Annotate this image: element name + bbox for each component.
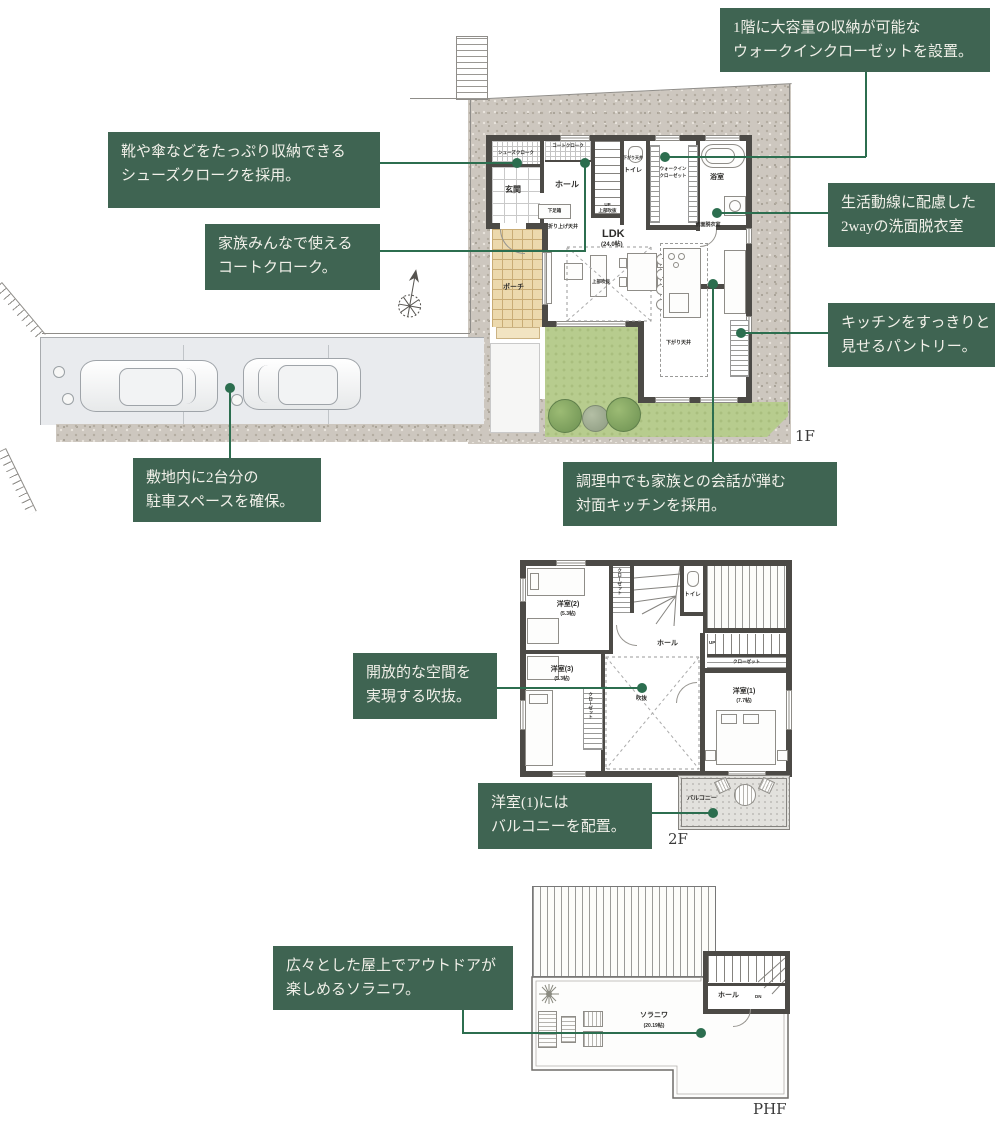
- dining-table: [627, 253, 657, 291]
- connector-coat-v: [584, 163, 586, 251]
- car-2-windshield: [258, 365, 275, 403]
- label-room3-size: (5.3帖): [538, 676, 586, 682]
- window: [655, 397, 690, 403]
- label-closet-room1: クローゼット: [707, 659, 786, 665]
- kitchen-sink: [669, 293, 689, 313]
- car-2: [243, 358, 361, 410]
- floor-label-1f: 1F: [795, 427, 815, 445]
- deck-chair: [583, 1011, 603, 1027]
- phf-stairs-fan: [758, 956, 785, 996]
- stove-burner: [678, 253, 685, 260]
- connector-washroom: [717, 212, 828, 214]
- floor-label-phf: PHF: [753, 1100, 787, 1118]
- car-2-cabin: [278, 365, 338, 405]
- wic-shelf: [650, 145, 660, 223]
- car-1-cabin: [119, 368, 183, 406]
- label-stairs-dn: DN: [755, 994, 762, 1000]
- label-porch: ポーチ: [503, 284, 524, 293]
- label-room2-size: (5.3帖): [544, 611, 592, 617]
- label-hall-1f: ホール: [555, 180, 579, 190]
- label-toilet-ceiling: 下がり天井: [620, 155, 646, 160]
- kitchen-back-counter: [724, 250, 746, 314]
- f2-stairs-to-phf: [707, 634, 786, 654]
- label-hall-2f: ホール: [657, 640, 678, 649]
- car-1: [80, 360, 218, 412]
- f1-genkan-floor: [492, 167, 540, 223]
- stove-burner: [673, 262, 679, 268]
- window: [556, 560, 586, 566]
- compass-icon: [388, 268, 432, 326]
- phf-roof: [532, 886, 716, 977]
- connector-kitchen: [712, 284, 714, 462]
- washbasin-bowl: [729, 200, 741, 212]
- connector-wic-v: [865, 70, 867, 157]
- label-void: 吹抜: [634, 696, 649, 703]
- label-toilet-2f: トイレ: [681, 592, 704, 599]
- window: [746, 228, 752, 244]
- label-room3: 洋室(3): [538, 666, 586, 675]
- connector-parking: [229, 388, 231, 458]
- tree-icon-1: [548, 399, 582, 433]
- wall: [703, 628, 792, 633]
- f1-approach: [490, 343, 540, 433]
- annotation-washroom: 生活動線に配慮した2wayの洗面脱衣室: [828, 183, 995, 247]
- tv-board: [546, 252, 552, 304]
- window: [655, 135, 680, 141]
- connector-void: [497, 687, 642, 689]
- label-coat-closet: コートクローク: [545, 143, 591, 149]
- pillow-room1: [743, 714, 759, 724]
- connector-pantry: [741, 332, 828, 334]
- annotation-void: 開放的な空間を実現する吹抜。: [353, 653, 497, 719]
- nightstand: [705, 750, 716, 761]
- label-stairs-up: UP: [595, 202, 620, 208]
- wall: [703, 668, 792, 673]
- site-boundary-west: [470, 100, 471, 333]
- tree-icon-2: [582, 405, 609, 432]
- label-closet-room2: クローゼット: [617, 568, 623, 612]
- label-solaniwa: ソラニワ: [626, 1012, 682, 1021]
- annotation-walkin-closet: 1階に大容量の収納が可能なウォークインクローゼットを設置。: [720, 8, 990, 72]
- label-closet-room3: クローゼット: [588, 692, 594, 744]
- dining-chair: [619, 277, 627, 287]
- label-genkan: 玄関: [505, 185, 521, 195]
- window: [705, 135, 740, 141]
- connector-solaniwa-v: [462, 1008, 464, 1033]
- wall: [638, 325, 644, 403]
- connector-shoes: [380, 162, 517, 164]
- label-living-void: 上部吹抜: [592, 279, 610, 285]
- deck-lounger: [538, 1011, 557, 1048]
- label-bath: 浴室: [710, 174, 724, 183]
- wall: [526, 650, 613, 654]
- f2-void: [605, 656, 700, 770]
- wall: [680, 566, 684, 616]
- label-hall-phf: ホール: [718, 992, 739, 1001]
- desk-room2: [527, 618, 559, 644]
- road-slope-hatch-top: [0, 282, 46, 341]
- annotation-pantry: キッチンをすっきりと見せるパントリー。: [828, 303, 995, 367]
- road-slope-hatch-bottom: [0, 448, 37, 515]
- label-toilet-1f: トイレ: [620, 168, 646, 176]
- pillow-room1: [721, 714, 737, 724]
- window: [552, 771, 586, 777]
- label-wic-line1: ウォークイン: [650, 166, 696, 172]
- wall: [540, 141, 544, 193]
- connector-balcony: [652, 812, 712, 814]
- floor-label-2f: 2F: [668, 830, 688, 848]
- label-shoes-closet: シューズクローク: [490, 150, 542, 156]
- floorplan-page: シューズクローク コートクローク 玄関 ホール 下足箱 折り上げ天井 UP 上部…: [0, 0, 1000, 1122]
- plant-icon: [538, 983, 560, 1005]
- label-wic-line2: クローゼット: [650, 173, 696, 179]
- retaining-wall: [456, 36, 488, 100]
- annotation-parking: 敷地内に2台分の駐車スペースを確保。: [133, 458, 321, 522]
- nightstand: [777, 750, 788, 761]
- pillow-room3: [529, 694, 548, 704]
- label-stairs-void: 上部吹抜: [591, 208, 624, 214]
- label-ldk: LDK: [602, 228, 625, 242]
- window: [786, 690, 792, 730]
- label-stairs-up-2f: UP: [709, 640, 715, 646]
- label-dropped-ceiling: 下がり天井: [666, 340, 691, 346]
- car-1-windshield: [181, 368, 196, 404]
- label-ldk-size: (24.0帖): [601, 242, 623, 250]
- balcony-table: [734, 784, 756, 806]
- label-balcony: バルコニー: [680, 796, 724, 804]
- f2-stairs-from-1f: [634, 566, 680, 626]
- shrub-3: [231, 394, 243, 406]
- connector-coat-h: [380, 250, 586, 252]
- f2-lower-roof: [707, 566, 786, 629]
- pillow-room2: [530, 573, 539, 590]
- label-solaniwa-size: (20.19帖): [626, 1023, 682, 1029]
- tree-icon-3: [606, 397, 641, 432]
- label-room2: 洋室(2): [544, 601, 592, 610]
- annotation-solaniwa: 広々とした屋上でアウトドアが楽しめるソラニワ。: [273, 946, 513, 1010]
- annotation-shoes-closet: 靴や傘などをたっぷり収納できるシューズクロークを採用。: [108, 132, 380, 208]
- annotation-balcony: 洋室(1)にはバルコニーを配置。: [478, 783, 652, 849]
- driveway-top-line: [42, 333, 470, 334]
- label-washroom: 洗面脱衣室: [686, 222, 730, 228]
- label-room1-size: (7.7帖): [718, 698, 770, 704]
- shrub-1: [53, 366, 65, 378]
- label-shoe-box: 下足箱: [538, 208, 571, 214]
- connector-wic-h: [665, 156, 866, 158]
- connector-solaniwa-h: [462, 1032, 701, 1034]
- f1-porch-step: [496, 327, 540, 339]
- wall: [703, 566, 707, 633]
- deck-lounger: [561, 1016, 576, 1043]
- label-coffered-ceiling: 折り上げ天井: [548, 224, 578, 230]
- toilet-fixture-2f: [687, 571, 699, 587]
- annotation-coat-closet: 家族みんなで使えるコートクローク。: [205, 224, 380, 290]
- window: [520, 578, 526, 602]
- dining-chair: [619, 258, 627, 268]
- site-boundary-east: [789, 84, 790, 442]
- window: [700, 397, 738, 403]
- stove-burner: [668, 253, 675, 260]
- wall: [708, 983, 785, 986]
- label-room1: 洋室(1): [718, 688, 770, 697]
- annotation-kitchen: 調理中でも家族との会話が弾む対面キッチンを採用。: [563, 462, 837, 526]
- shrub-2: [62, 393, 74, 405]
